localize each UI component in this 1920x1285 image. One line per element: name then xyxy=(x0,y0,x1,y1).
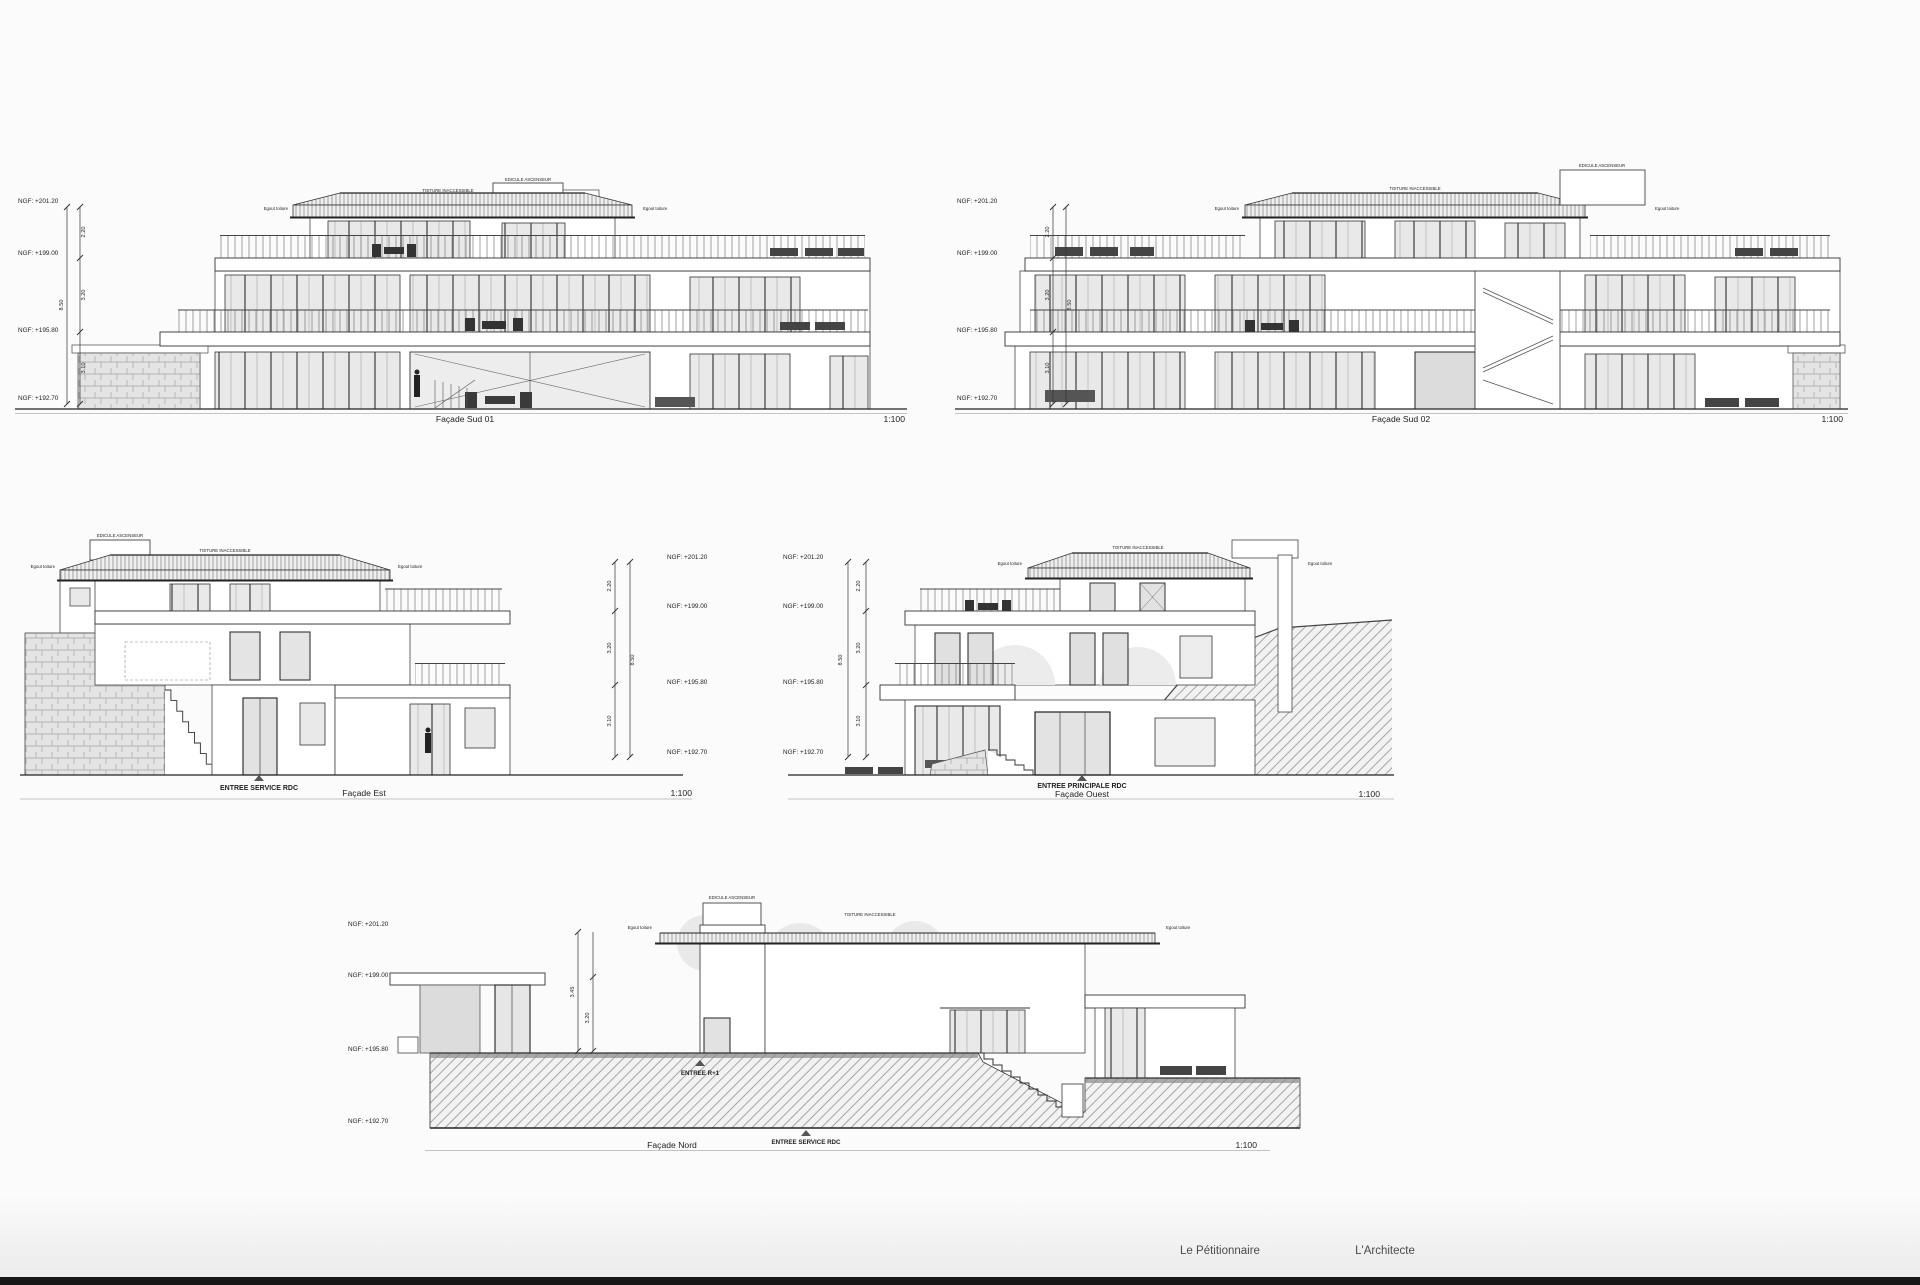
dim-label: 2.20 xyxy=(1045,227,1051,238)
elevator-shaft-tower xyxy=(700,903,765,1053)
right-wing xyxy=(1085,995,1245,1078)
footer-band xyxy=(0,1195,1920,1277)
ngf-label: NGF: +199.00 xyxy=(783,603,824,610)
dim-label: 2.20 xyxy=(607,581,613,592)
ground-floor xyxy=(845,700,1255,775)
shaft-label: EDICULE ASCENSEUR xyxy=(97,533,143,538)
dim-label: 3.45 xyxy=(570,987,576,998)
eave-label: Egout toiture xyxy=(1215,206,1240,211)
dimension-lines xyxy=(575,929,596,1054)
entry-label: ENTREE SERVICE RDC xyxy=(772,1139,842,1146)
roof-label: TOITURE INACCESSIBLE xyxy=(1112,545,1163,550)
scale-label: 1:100 xyxy=(1821,414,1843,424)
dim-label: 3.20 xyxy=(1045,290,1051,301)
ngf-label: NGF: +192.70 xyxy=(783,749,824,756)
dim-label: 3.10 xyxy=(856,716,862,727)
roof xyxy=(655,933,1160,944)
ngf-label: NGF: +199.00 xyxy=(18,250,59,257)
ground-floor xyxy=(72,345,870,409)
facade-sud-02-drawing: NGF: +201.20 NGF: +199.00 NGF: +195.80 N… xyxy=(945,140,1855,430)
facade-est-drawing: NGF: +201.20 NGF: +199.00 NGF: +195.80 N… xyxy=(15,428,715,808)
shaft-label: EDICULE ASCENSEUR xyxy=(1579,163,1625,168)
drawing-title: Façade Nord xyxy=(647,1140,697,1150)
eave-label: Egout toiture xyxy=(1308,561,1333,566)
first-floor xyxy=(95,624,410,685)
ngf-label: NGF: +201.20 xyxy=(18,198,59,205)
facade-sud-01-drawing: NGF: +201.20 NGF: +199.00 NGF: +195.80 N… xyxy=(10,140,920,430)
entry-marker xyxy=(1077,775,1087,781)
ngf-label: NGF: +195.80 xyxy=(957,327,998,334)
second-floor xyxy=(215,217,870,271)
external-staircase xyxy=(1475,258,1560,409)
dim-label: 3.20 xyxy=(856,643,862,654)
ngf-label: NGF: +192.70 xyxy=(667,749,708,756)
eave-label: Egout toiture xyxy=(643,206,668,211)
eave-label: Egout toiture xyxy=(1166,925,1191,930)
bottom-bar xyxy=(0,1277,1920,1285)
ngf-label: NGF: +201.20 xyxy=(957,198,998,205)
dim-label: 3.20 xyxy=(585,1013,591,1024)
dim-label: 3.10 xyxy=(81,363,87,374)
facade-sud-02-canvas: NGF: +201.20 NGF: +199.00 NGF: +195.80 N… xyxy=(945,140,1855,430)
ngf-label: NGF: +195.80 xyxy=(348,1046,389,1053)
dim-total-label: 8.50 xyxy=(59,300,65,311)
ngf-label: NGF: +199.00 xyxy=(957,250,998,257)
entry-label: ENTREE R+1 xyxy=(681,1070,720,1077)
entry-marker xyxy=(254,775,264,781)
second-floor xyxy=(905,578,1255,625)
ngf-label: NGF: +199.00 xyxy=(348,972,389,979)
ngf-label: NGF: +199.00 xyxy=(667,603,708,610)
ngf-label: NGF: +195.80 xyxy=(18,327,59,334)
scale-label: 1:100 xyxy=(670,788,692,798)
ground-floor xyxy=(1015,345,1845,409)
dim-label: 3.20 xyxy=(81,290,87,301)
dim-label: 2.20 xyxy=(81,227,87,238)
center-wall xyxy=(765,943,1085,1053)
ngf-label: NGF: +192.70 xyxy=(18,395,59,402)
drawing-title: Façade Est xyxy=(342,788,386,798)
first-floor xyxy=(1005,271,1840,346)
first-floor xyxy=(160,271,870,346)
eave-label: Egout toiture xyxy=(628,925,653,930)
shaft-label: EDICULE ASCENSEUR xyxy=(505,177,551,182)
roof-label: TOITURE INACCESSIBLE xyxy=(199,548,250,553)
scale-label: 1:100 xyxy=(1235,1140,1257,1150)
facade-nord-drawing: NGF: +201.20 NGF: +199.00 NGF: +195.80 N… xyxy=(330,885,1310,1165)
drawing-title: Façade Ouest xyxy=(1055,789,1110,799)
dim-label: 2.20 xyxy=(856,581,862,592)
ngf-label: NGF: +192.70 xyxy=(348,1118,389,1125)
elevation-sheet: NGF: +201.20 NGF: +199.00 NGF: +195.80 N… xyxy=(0,0,1920,1285)
facade-ouest-drawing: NGF: +201.20 NGF: +199.00 NGF: +195.80 N… xyxy=(780,428,1400,808)
shaft-label: EDICULE ASCENSEUR xyxy=(709,895,755,900)
second-floor xyxy=(1025,217,1840,271)
eave-label: Egout toiture xyxy=(264,206,289,211)
chimney xyxy=(1278,555,1292,712)
dim-total-label: 8.50 xyxy=(630,655,636,666)
roof xyxy=(57,540,393,581)
dim-total-label: 8.50 xyxy=(838,655,844,666)
left-wing xyxy=(390,973,545,1053)
entry-marker xyxy=(801,1130,811,1136)
second-floor xyxy=(95,580,510,624)
eave-label: Egout toiture xyxy=(1655,206,1680,211)
ngf-label: NGF: +201.20 xyxy=(348,921,389,928)
facade-nord-canvas: NGF: +201.20 NGF: +199.00 NGF: +195.80 N… xyxy=(330,885,1310,1165)
scale-label: 1:100 xyxy=(1358,789,1380,799)
roof-label: TOITURE INACCESSIBLE xyxy=(844,912,895,917)
ngf-label: NGF: +195.80 xyxy=(783,679,824,686)
facade-est-canvas: NGF: +201.20 NGF: +199.00 NGF: +195.80 N… xyxy=(15,428,715,808)
architect-label: L'Architecte xyxy=(1300,1245,1470,1257)
roof-label: TOITURE INACCESSIBLE xyxy=(1389,186,1440,191)
entry-label: ENTREE SERVICE RDC xyxy=(220,785,298,792)
dim-label: 3.20 xyxy=(607,643,613,654)
facade-ouest-canvas: NGF: +201.20 NGF: +199.00 NGF: +195.80 N… xyxy=(780,428,1400,808)
eave-label: Egout toiture xyxy=(398,564,423,569)
ngf-label: NGF: +195.80 xyxy=(667,679,708,686)
dim-total-label: 8.50 xyxy=(1067,300,1073,311)
drawing-title: Façade Sud 02 xyxy=(1372,414,1431,424)
drawing-title: Façade Sud 01 xyxy=(436,414,495,424)
ngf-label: NGF: +201.20 xyxy=(667,554,708,561)
scale-label: 1:100 xyxy=(883,414,905,424)
dim-label: 3.10 xyxy=(607,716,613,727)
dim-label: 3.10 xyxy=(1045,363,1051,374)
eave-label: Egout toiture xyxy=(31,564,56,569)
roof xyxy=(1242,170,1645,218)
ngf-label: NGF: +192.70 xyxy=(957,395,998,402)
ngf-label: NGF: +201.20 xyxy=(783,554,824,561)
roof-label: TOITURE INACCESSIBLE xyxy=(422,188,473,193)
facade-sud-01-canvas: NGF: +201.20 NGF: +199.00 NGF: +195.80 N… xyxy=(10,140,920,430)
petitioner-label: Le Pétitionnaire xyxy=(1130,1245,1310,1257)
eave-label: Egout toiture xyxy=(998,561,1023,566)
